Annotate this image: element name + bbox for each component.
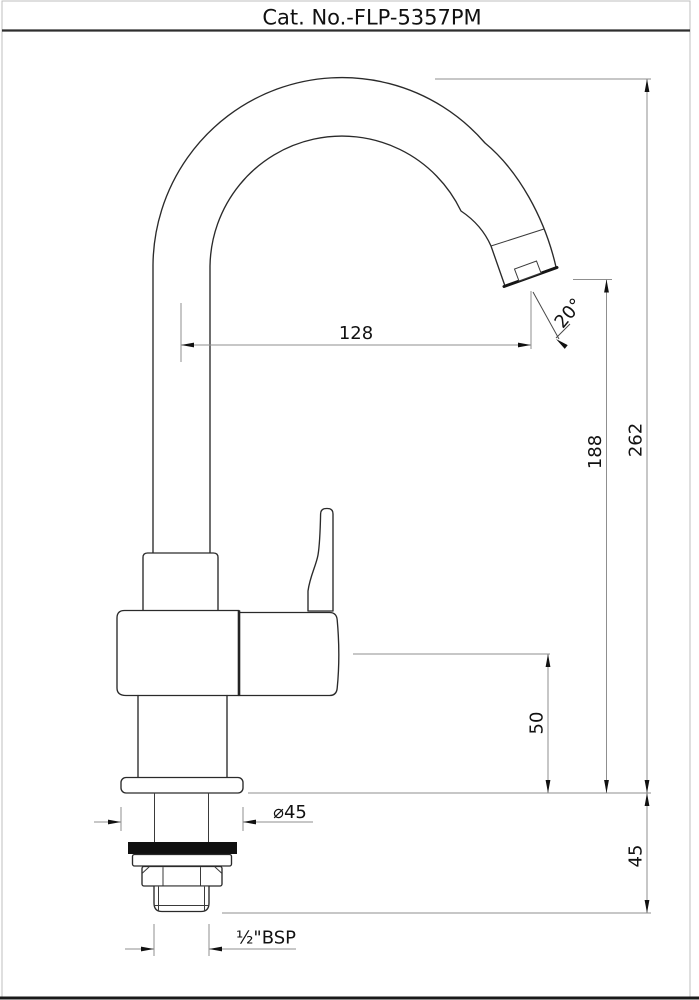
dimension-flange-diameter: ⌀45 xyxy=(94,802,313,824)
dimension-overall-height: 262 xyxy=(626,79,650,793)
arrow-phi45-right xyxy=(243,820,256,825)
arrow-262-bottom xyxy=(645,780,650,793)
dim-label-20deg: 20° xyxy=(550,294,587,332)
arrow-188-bottom xyxy=(604,780,609,793)
dim-label-188: 188 xyxy=(585,435,606,469)
arrow-262-top xyxy=(645,79,650,92)
mounting-washer xyxy=(133,855,232,867)
arrow-angle xyxy=(555,337,568,349)
mounting-hex-nut xyxy=(142,867,222,887)
sheet-frame: Cat. No.-FLP-5357PM xyxy=(0,1,699,998)
arrow-phi45-left xyxy=(108,820,121,825)
dimension-spout-angle: 20° xyxy=(533,292,587,349)
arrow-45-top xyxy=(645,793,650,806)
arrow-50-top xyxy=(546,654,551,667)
dim-label-128: 128 xyxy=(339,323,373,344)
faucet-outline xyxy=(117,78,557,912)
dim-label-bsp: ½"BSP xyxy=(236,928,296,949)
main-body xyxy=(117,611,239,696)
technical-drawing-canvas: Cat. No.-FLP-5357PM xyxy=(0,0,699,1000)
lower-neck xyxy=(138,696,227,778)
arrow-45-bottom xyxy=(645,900,650,913)
valve-housing xyxy=(239,613,339,696)
dim-label-50: 50 xyxy=(527,712,548,735)
base-flange xyxy=(121,778,243,794)
arrow-bsp-left xyxy=(141,947,154,952)
dim-label-262: 262 xyxy=(626,423,647,457)
dimension-spout-reach: 128 xyxy=(181,323,531,347)
arrow-188-top xyxy=(604,280,609,293)
dimension-shank-length: 45 xyxy=(626,793,650,913)
dim-label-45: 45 xyxy=(626,845,647,868)
drawing-sheet: Cat. No.-FLP-5357PM xyxy=(0,0,699,1000)
arrow-50-bottom xyxy=(546,780,551,793)
dimension-inlet-thread: ½"BSP xyxy=(125,928,296,952)
lever-handle xyxy=(308,509,333,612)
sheet-border xyxy=(2,1,690,997)
catalog-number-title: Cat. No.-FLP-5357PM xyxy=(262,6,481,30)
shoulder-collar xyxy=(143,553,218,611)
arrow-128-right xyxy=(518,343,531,348)
arrow-bsp-right xyxy=(209,947,222,952)
dim-label-phi45: ⌀45 xyxy=(273,802,307,823)
rubber-gasket xyxy=(128,842,237,854)
dimension-outlet-height: 188 xyxy=(585,280,609,794)
dimension-body-height: 50 xyxy=(527,654,551,793)
spout-and-riser-outline xyxy=(153,78,556,553)
bsp-thread-end xyxy=(154,887,209,912)
